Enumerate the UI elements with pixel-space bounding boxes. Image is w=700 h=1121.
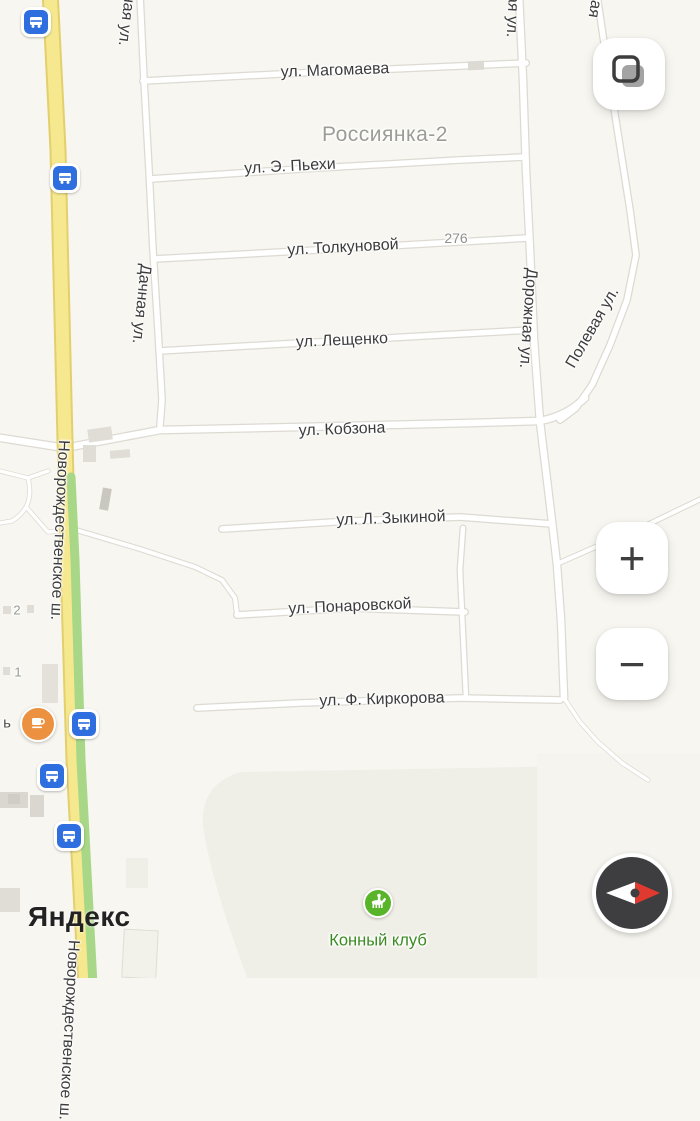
bus-stop-icon[interactable] (50, 163, 80, 193)
compass-button[interactable] (592, 853, 672, 933)
layers-button[interactable] (593, 38, 665, 110)
coffee-cup-icon (28, 712, 48, 737)
yandex-maps-app: { "app": { "logo": "Яндекс" }, "map": { … (0, 0, 700, 978)
bus-stop-icon[interactable] (37, 761, 67, 791)
yandex-logo: Яндекс (28, 901, 131, 933)
zoom-in-button[interactable]: + (596, 522, 668, 594)
cafe-poi[interactable] (20, 706, 56, 742)
horse-club-poi[interactable] (363, 888, 393, 918)
horse-rider-icon (368, 891, 388, 916)
bus-stop-icon[interactable] (21, 7, 51, 37)
layers-icon (610, 53, 648, 96)
bus-stop-icon[interactable] (54, 821, 84, 851)
bus-stop-icon[interactable] (69, 709, 99, 739)
minus-icon: − (619, 628, 646, 700)
plus-icon: + (619, 522, 646, 594)
map-canvas[interactable] (0, 0, 700, 978)
compass-needle-icon (596, 857, 668, 929)
zoom-out-button[interactable]: − (596, 628, 668, 700)
